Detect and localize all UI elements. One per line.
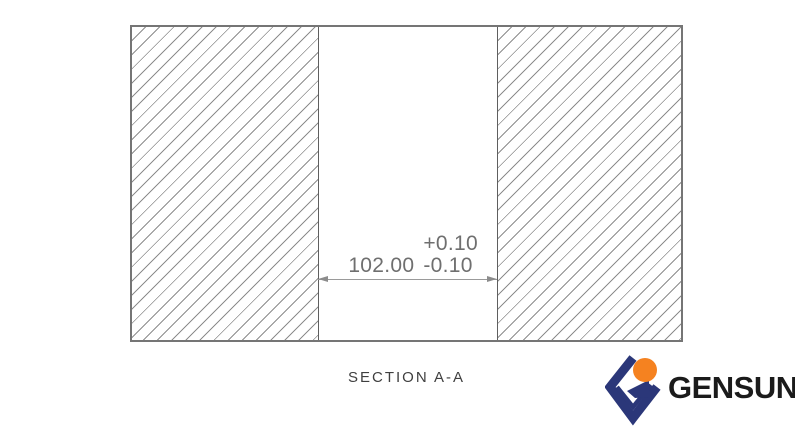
gensun-logo-text: GENSUN	[668, 372, 795, 403]
section-label: SECTION A-A	[130, 369, 683, 386]
tolerance-plus: +0.10	[423, 233, 478, 255]
tolerance-minus: -0.10	[423, 255, 478, 277]
drawing-canvas: 102.00 +0.10 -0.10 SECTION A-A GENSUN	[0, 0, 795, 431]
gensun-logo-mark-icon	[605, 348, 663, 426]
logo-orange-dot	[633, 358, 657, 382]
section-view	[130, 25, 683, 342]
gensun-logo: GENSUN	[605, 348, 795, 426]
dimension-value: 102.00	[348, 255, 414, 277]
dimension-arrow-left-icon	[318, 276, 328, 282]
dimension-arrow-right-icon	[487, 276, 497, 282]
bore-gap	[319, 27, 497, 340]
hatched-block-right	[497, 27, 681, 340]
logo-g-hook	[627, 380, 649, 398]
hatched-block-left	[132, 27, 319, 340]
dimension-line	[318, 279, 497, 280]
dimension-annotation: 102.00 +0.10 -0.10	[348, 233, 478, 277]
dimension-tolerance-stack: +0.10 -0.10	[423, 233, 478, 277]
